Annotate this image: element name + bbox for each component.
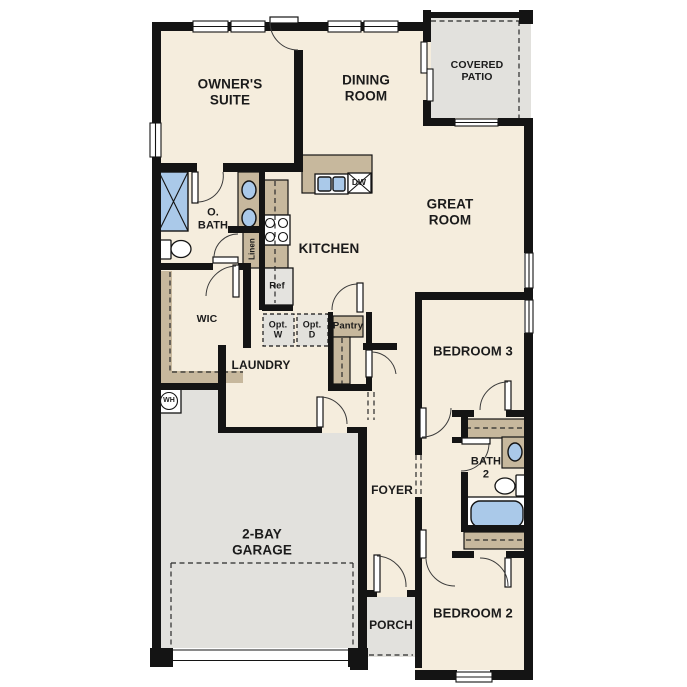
kitchen-sink <box>315 174 348 194</box>
label-refrigerator: Ref <box>269 280 285 291</box>
room-label-wic: WIC <box>197 313 218 325</box>
garage-door <box>173 648 348 663</box>
room-label-great-room: GREAT ROOM <box>427 196 474 227</box>
label-opt-dryer: Opt. D <box>303 320 321 341</box>
label-opt-washer: Opt. W <box>269 320 287 341</box>
room-label-o-bath: O. BATH <box>198 206 228 232</box>
stove <box>262 215 290 245</box>
shower <box>159 172 188 231</box>
label-pantry: Pantry <box>333 320 363 331</box>
patio-slider-panel <box>421 42 427 73</box>
room-label-covered-patio: COVERED PATIO <box>451 59 504 83</box>
floor-plan: OWNER'S SUITE DINING ROOM COVERED PATIO … <box>0 0 687 687</box>
room-label-bath-2: BATH 2 <box>471 455 501 481</box>
label-dishwasher: DW <box>352 178 366 188</box>
room-label-dining-room: DINING ROOM <box>342 72 390 103</box>
patio-slider-panel <box>427 69 433 101</box>
owners-bath-toilet <box>160 240 191 259</box>
room-label-kitchen: KITCHEN <box>299 241 360 257</box>
bath2-sink <box>508 443 522 461</box>
room-label-bedroom-2: BEDROOM 2 <box>433 605 513 620</box>
label-linen: Linen <box>247 238 256 260</box>
room-label-garage: 2-BAY GARAGE <box>232 526 292 557</box>
room-label-porch: PORCH <box>369 619 413 633</box>
room-label-bedroom-3: BEDROOM 3 <box>433 343 513 358</box>
room-label-laundry: LAUNDRY <box>232 359 291 373</box>
room-label-owners-suite: OWNER'S SUITE <box>198 76 263 107</box>
room-label-foyer: FOYER <box>371 484 413 498</box>
label-water-heater: WH <box>163 397 175 405</box>
